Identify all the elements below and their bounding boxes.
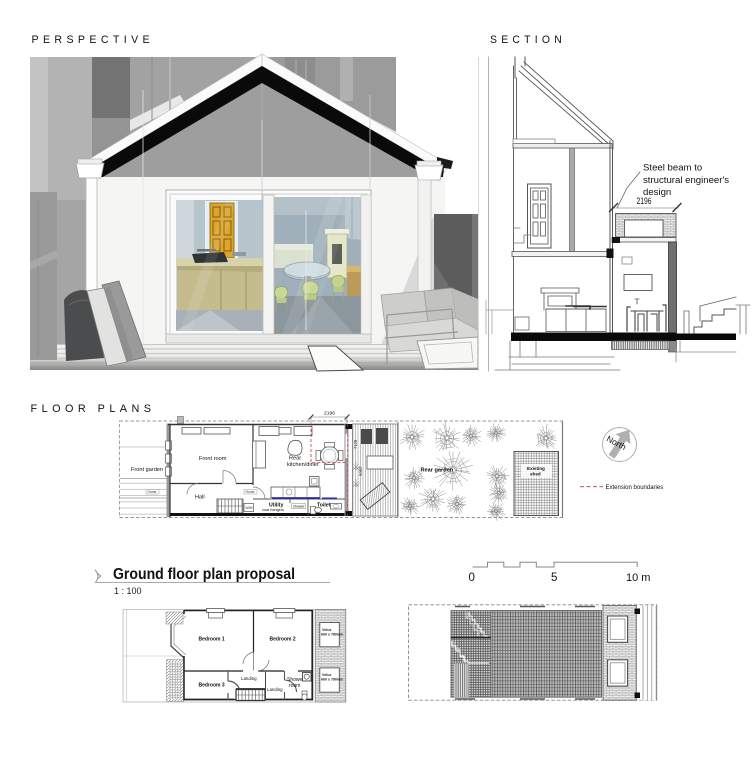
svg-text:7108: 7108 — [353, 439, 358, 449]
svg-text:room: room — [289, 683, 300, 689]
svg-text:Velux: Velux — [322, 673, 331, 677]
svg-text:Front room: Front room — [199, 456, 227, 462]
svg-text:PERSPECTIVE: PERSPECTIVE — [32, 34, 155, 46]
svg-text:1 : 100: 1 : 100 — [114, 586, 142, 596]
svg-text:Extension boundaries: Extension boundaries — [606, 485, 664, 491]
svg-text:Velux: Velux — [322, 628, 331, 632]
svg-text:Steel beam to: Steel beam to — [643, 163, 702, 174]
svg-text:0: 0 — [469, 572, 475, 584]
svg-text:5082: 5082 — [358, 466, 363, 476]
svg-text:shower: shower — [293, 505, 305, 509]
svg-text:Home: Home — [246, 490, 255, 494]
svg-text:Bedroom 2: Bedroom 2 — [270, 637, 296, 643]
svg-text:660 x 780mm: 660 x 780mm — [321, 678, 343, 682]
svg-text:Bedroom 3: Bedroom 3 — [199, 683, 225, 689]
svg-text:Rear garden: Rear garden — [421, 468, 454, 474]
svg-text:Rear: Rear — [289, 456, 301, 462]
svg-text:Ground floor plan proposal: Ground floor plan proposal — [113, 566, 295, 583]
svg-text:Existing: Existing — [527, 466, 545, 471]
svg-text:Front garden: Front garden — [131, 467, 163, 473]
svg-text:2196: 2196 — [637, 196, 652, 207]
svg-text:2196: 2196 — [324, 411, 336, 416]
svg-text:660 x 780mm: 660 x 780mm — [321, 633, 343, 637]
svg-text:5: 5 — [551, 572, 557, 584]
svg-text:Home: Home — [148, 490, 157, 494]
svg-text:Landing: Landing — [267, 687, 283, 692]
svg-text:shed: shed — [530, 472, 541, 477]
svg-text:coat hangers: coat hangers — [262, 508, 284, 512]
svg-text:SECTION: SECTION — [490, 34, 566, 46]
svg-text:FLOOR PLANS: FLOOR PLANS — [31, 403, 156, 415]
svg-text:10 m: 10 m — [626, 572, 650, 584]
svg-text:Bedroom 1: Bedroom 1 — [199, 637, 225, 643]
svg-text:W/M: W/M — [246, 506, 253, 510]
svg-text:Landing: Landing — [241, 676, 257, 681]
svg-text:Hall: Hall — [195, 495, 205, 501]
svg-text:structural engineer's: structural engineer's — [643, 175, 729, 186]
